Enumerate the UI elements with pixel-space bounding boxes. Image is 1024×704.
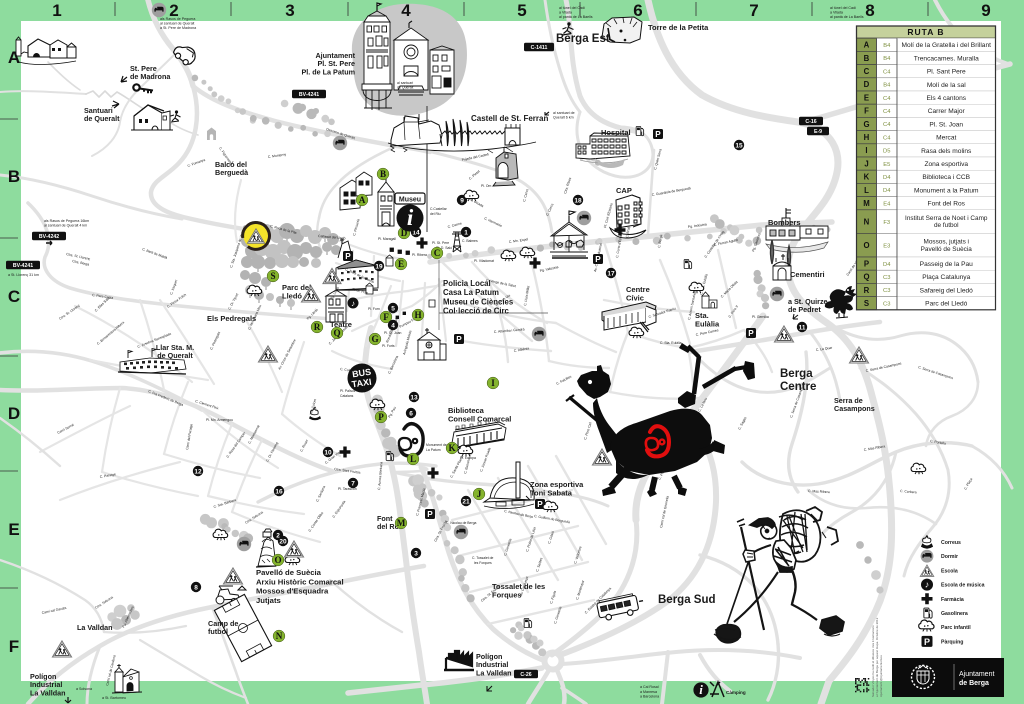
svg-text:I: I xyxy=(865,146,867,155)
svg-text:1: 1 xyxy=(464,230,468,237)
svg-text:a Barcelona: a Barcelona xyxy=(640,695,659,699)
svg-text:Torre de la Petita: Torre de la Petita xyxy=(648,23,709,32)
svg-text:a St. Bartomeu: a St. Bartomeu xyxy=(102,696,126,700)
svg-text:P: P xyxy=(924,637,930,647)
svg-text:a Vilada: a Vilada xyxy=(830,10,843,14)
svg-text:A: A xyxy=(8,48,20,67)
svg-text:C3: C3 xyxy=(883,288,890,294)
svg-text:Ajuntament @Ajuntamentomou: Ajuntament @Ajuntamentomou xyxy=(879,655,883,697)
svg-text:BV-4241: BV-4241 xyxy=(299,92,319,98)
svg-text:Farmàcia: Farmàcia xyxy=(941,597,964,603)
svg-text:BV-4242: BV-4242 xyxy=(39,234,59,240)
svg-text:als Rasos de Peguera 16km: als Rasos de Peguera 16km xyxy=(44,219,89,223)
svg-text:Berga: Berga xyxy=(780,368,813,380)
svg-text:Cementiri: Cementiri xyxy=(790,270,825,279)
svg-text:Berga Sud: Berga Sud xyxy=(658,594,716,606)
svg-text:a Solsona: a Solsona xyxy=(76,687,92,691)
svg-text:de Queralt: de Queralt xyxy=(84,114,120,123)
svg-text:P: P xyxy=(427,510,433,519)
svg-text:B4: B4 xyxy=(883,83,891,89)
svg-text:P: P xyxy=(595,255,601,264)
svg-text:Ajuntament: Ajuntament xyxy=(959,671,994,678)
svg-text:Jutjats: Jutjats xyxy=(256,596,281,605)
svg-text:futbol: futbol xyxy=(208,627,228,636)
svg-text:7: 7 xyxy=(351,481,355,488)
svg-text:Pl. Viladomat: Pl. Viladomat xyxy=(474,259,494,263)
svg-text:al santuari de: al santuari de xyxy=(553,111,575,115)
svg-text:R: R xyxy=(864,286,870,295)
svg-text:17: 17 xyxy=(607,271,615,278)
svg-text:Carrer Major: Carrer Major xyxy=(928,108,966,115)
svg-text:20: 20 xyxy=(279,539,287,546)
svg-text:Escola de música: Escola de música xyxy=(941,583,985,589)
svg-text:Dormir: Dormir xyxy=(941,554,958,560)
svg-text:H: H xyxy=(414,310,421,320)
svg-text:La Valldan: La Valldan xyxy=(77,623,113,632)
svg-text:Càmping: Càmping xyxy=(726,690,746,695)
svg-text:al santuari de Queralt 4 km: al santuari de Queralt 4 km xyxy=(44,223,87,227)
svg-text:B: B xyxy=(864,54,870,63)
svg-text:C: C xyxy=(864,67,870,76)
svg-text:♪: ♪ xyxy=(925,580,930,590)
svg-text:Els Pedregals: Els Pedregals xyxy=(207,314,256,323)
svg-text:Queralt 6 km: Queralt 6 km xyxy=(553,116,574,120)
svg-text:C: C xyxy=(434,248,441,258)
svg-text:F: F xyxy=(864,107,869,116)
svg-text:a Manresa: a Manresa xyxy=(640,690,657,694)
svg-text:A: A xyxy=(864,41,870,50)
svg-text:D4: D4 xyxy=(883,188,891,194)
svg-text:al pantà de La Baells: al pantà de La Baells xyxy=(559,15,593,19)
svg-text:C. Nicolau de Berga: C. Nicolau de Berga xyxy=(446,521,476,525)
svg-text:O: O xyxy=(274,555,281,565)
svg-text:B: B xyxy=(380,169,386,179)
svg-text:C4: C4 xyxy=(883,109,891,115)
svg-text:10: 10 xyxy=(324,450,332,457)
svg-text:D5: D5 xyxy=(883,149,890,155)
svg-text:G: G xyxy=(863,120,869,129)
svg-text:C4: C4 xyxy=(883,135,891,141)
svg-text:13: 13 xyxy=(410,395,418,402)
svg-text:Lledó: Lledó xyxy=(282,292,302,301)
svg-text:B: B xyxy=(8,167,20,186)
svg-text:a St. Pere de Madrona: a St. Pere de Madrona xyxy=(160,26,196,30)
svg-text:Parc infantil: Parc infantil xyxy=(941,625,971,631)
svg-text:9: 9 xyxy=(460,198,464,205)
svg-text:11: 11 xyxy=(799,325,806,332)
svg-text:Castell de St. Ferran: Castell de St. Ferran xyxy=(471,114,548,123)
svg-text:al pantà de La Baells: al pantà de La Baells xyxy=(830,15,864,19)
svg-text:Parc del Lledó: Parc del Lledó xyxy=(925,301,967,308)
svg-text:B4: B4 xyxy=(883,43,891,49)
svg-text:Berga Est: Berga Est xyxy=(556,33,610,45)
svg-text:Molí de la Gratella i del Bril: Molí de la Gratella i del Brillant xyxy=(902,42,992,49)
svg-text:C4: C4 xyxy=(883,69,891,75)
svg-text:N: N xyxy=(864,217,870,226)
svg-text:Casa La Patum: Casa La Patum xyxy=(443,288,499,297)
svg-text:Pl. St. Joan: Pl. St. Joan xyxy=(929,121,963,128)
svg-text:Gasolinera: Gasolinera xyxy=(941,611,968,617)
svg-text:D: D xyxy=(864,80,870,89)
svg-text:C4: C4 xyxy=(883,122,891,128)
svg-text:La Valldan: La Valldan xyxy=(30,688,66,697)
svg-text:E3: E3 xyxy=(883,243,890,249)
svg-text:i: i xyxy=(699,682,703,697)
svg-text:J: J xyxy=(477,489,482,499)
svg-text:de futbol: de futbol xyxy=(934,222,959,229)
svg-text:Pl. Forts: Pl. Forts xyxy=(382,344,395,348)
svg-text:16: 16 xyxy=(275,489,283,496)
svg-text:E4: E4 xyxy=(883,201,891,207)
svg-text:La Patum: La Patum xyxy=(426,448,441,452)
svg-text:Pl. Europa: Pl. Europa xyxy=(460,456,476,460)
svg-text:de Berga: de Berga xyxy=(959,680,989,687)
svg-text:Pàrquing: Pàrquing xyxy=(941,639,963,645)
svg-text:Plaça Catalunya: Plaça Catalunya xyxy=(922,274,970,281)
svg-text:Pl. de La Patum: Pl. de La Patum xyxy=(301,67,355,76)
svg-text:E: E xyxy=(864,93,869,102)
svg-text:♪: ♪ xyxy=(351,299,355,308)
svg-text:5: 5 xyxy=(391,306,395,313)
svg-text:Pl. Maragall: Pl. Maragall xyxy=(378,237,396,241)
svg-text:Font del Ros: Font del Ros xyxy=(928,201,966,208)
svg-text:Pl. Països: Pl. Països xyxy=(340,389,356,393)
svg-text:Monument a la Patum: Monument a la Patum xyxy=(914,187,979,194)
svg-text:de Madrona: de Madrona xyxy=(130,72,171,81)
svg-text:Pl. Sant Pere: Pl. Sant Pere xyxy=(927,69,966,76)
svg-text:al túnel del Cadí: al túnel del Cadí xyxy=(559,6,585,10)
svg-text:R: R xyxy=(314,322,321,332)
svg-text:6: 6 xyxy=(409,411,413,418)
svg-text:1: 1 xyxy=(52,1,61,20)
svg-text:de Pedret: de Pedret xyxy=(788,305,821,314)
svg-text:7: 7 xyxy=(749,1,758,20)
svg-text:Berguedà: Berguedà xyxy=(215,168,249,177)
svg-text:Catalans: Catalans xyxy=(340,394,354,398)
svg-text:E: E xyxy=(8,520,19,539)
svg-text:Pl. Ribera: Pl. Ribera xyxy=(412,253,427,257)
svg-text:Toni Sabata: Toni Sabata xyxy=(530,489,573,498)
svg-text:19: 19 xyxy=(375,264,383,271)
svg-text:Arxiu Històric Comarcal: Arxiu Històric Comarcal xyxy=(256,577,344,586)
svg-text:M: M xyxy=(397,518,406,528)
svg-text:P: P xyxy=(655,130,661,139)
svg-text:Trencacames. Muralla: Trencacames. Muralla xyxy=(914,55,979,62)
svg-text:Pl. St. Pere: Pl. St. Pere xyxy=(432,241,449,245)
svg-text:3: 3 xyxy=(285,1,294,20)
svg-text:P: P xyxy=(537,500,543,509)
svg-text:M: M xyxy=(863,199,870,208)
svg-text:9: 9 xyxy=(981,1,990,20)
svg-text:al santuari de Queralt: al santuari de Queralt xyxy=(160,21,194,25)
svg-text:D4: D4 xyxy=(883,262,891,268)
svg-text:12: 12 xyxy=(194,469,202,476)
svg-text:a Vilada: a Vilada xyxy=(559,10,572,14)
svg-text:L: L xyxy=(410,454,416,464)
svg-text:La Valldan: La Valldan xyxy=(476,668,512,677)
svg-text:A: A xyxy=(359,195,366,205)
svg-text:P: P xyxy=(748,329,754,338)
svg-text:Rasa dels molins: Rasa dels molins xyxy=(921,148,972,155)
svg-text:al santuari: al santuari xyxy=(397,81,413,85)
svg-text:C. Balmes: C. Balmes xyxy=(462,239,478,243)
svg-text:C: C xyxy=(8,287,20,306)
svg-text:B4: B4 xyxy=(883,56,891,62)
svg-text:F3: F3 xyxy=(883,220,890,226)
svg-text:C-1411: C-1411 xyxy=(531,45,548,51)
svg-text:N: N xyxy=(276,631,283,641)
svg-text:Institut Serra de Noet i Camp: Institut Serra de Noet i Camp xyxy=(905,215,988,222)
svg-text:Bombers: Bombers xyxy=(768,218,801,227)
svg-text:Q: Q xyxy=(333,328,340,338)
svg-text:a Cal Rosal: a Cal Rosal xyxy=(640,685,659,689)
svg-text:C3: C3 xyxy=(883,301,890,307)
svg-text:Q: Q xyxy=(863,273,869,282)
svg-text:Safareig del Lledó: Safareig del Lledó xyxy=(920,287,973,294)
svg-text:21: 21 xyxy=(462,499,470,506)
svg-text:Col·lecció de Circ: Col·lecció de Circ xyxy=(443,307,510,316)
svg-text:Els 4 cantons: Els 4 cantons xyxy=(926,95,966,102)
svg-text:Pavelló de Suècia: Pavelló de Suècia xyxy=(921,246,973,253)
svg-text:Pl. Om: Pl. Om xyxy=(481,184,492,188)
svg-text:E: E xyxy=(398,259,404,269)
svg-text:Consell Comarcal: Consell Comarcal xyxy=(448,415,511,424)
svg-text:Zona esportiva: Zona esportiva xyxy=(924,161,968,168)
svg-text:Casampons: Casampons xyxy=(834,404,875,413)
svg-text:Policia Local: Policia Local xyxy=(443,279,491,288)
svg-text:Pl. Gernika: Pl. Gernika xyxy=(752,315,769,319)
svg-text:5: 5 xyxy=(517,1,526,20)
svg-text:C-16: C-16 xyxy=(805,119,816,125)
svg-text:C4: C4 xyxy=(883,96,891,102)
svg-text:de Queralt: de Queralt xyxy=(397,85,413,89)
svg-text:Pl. Forn: Pl. Forn xyxy=(368,307,380,311)
svg-text:F: F xyxy=(9,637,19,656)
svg-text:RUTA B: RUTA B xyxy=(907,27,944,37)
svg-text:H: H xyxy=(864,133,870,142)
svg-text:L: L xyxy=(864,186,869,195)
svg-text:3: 3 xyxy=(414,551,418,558)
svg-text:6: 6 xyxy=(633,1,642,20)
svg-text:C. Tossalet de: C. Tossalet de xyxy=(472,556,494,560)
svg-text:4: 4 xyxy=(391,323,395,330)
svg-text:S: S xyxy=(270,271,275,281)
svg-text:C.Castellar: C.Castellar xyxy=(430,207,448,211)
svg-text:C3: C3 xyxy=(883,275,890,281)
svg-text:Mossos d'Esquadra: Mossos d'Esquadra xyxy=(256,587,329,596)
svg-text:J: J xyxy=(864,159,868,168)
svg-text:Eulàlia: Eulàlia xyxy=(695,320,720,329)
svg-text:G: G xyxy=(371,334,378,344)
svg-text:de Queralt: de Queralt xyxy=(157,351,193,360)
svg-text:Monument de: Monument de xyxy=(426,443,447,447)
svg-text:K: K xyxy=(864,173,870,182)
svg-text:CAP: CAP xyxy=(616,186,632,195)
svg-text:al túnel del Cadí: al túnel del Cadí xyxy=(830,6,856,10)
svg-text:2: 2 xyxy=(169,1,178,20)
svg-text:Cívic: Cívic xyxy=(626,294,644,303)
svg-text:Pl. Mn. Armengou: Pl. Mn. Armengou xyxy=(206,418,233,422)
svg-text:Passeig de la Pau: Passeig de la Pau xyxy=(920,261,973,268)
svg-text:Escola: Escola xyxy=(941,568,958,574)
svg-text:K: K xyxy=(448,443,456,453)
svg-text:C-26: C-26 xyxy=(520,672,531,678)
svg-text:F: F xyxy=(383,312,389,322)
svg-text:D4: D4 xyxy=(883,175,891,181)
svg-text:S: S xyxy=(864,299,869,308)
svg-text:Pavelló de Suècia: Pavelló de Suècia xyxy=(256,568,322,577)
svg-text:Pl. St. Joan: Pl. St. Joan xyxy=(384,331,401,335)
svg-text:les Forques: les Forques xyxy=(474,561,492,565)
svg-text:D: D xyxy=(8,404,20,423)
svg-text:4: 4 xyxy=(401,1,411,20)
svg-text:E5: E5 xyxy=(883,162,890,168)
svg-text:O: O xyxy=(863,241,869,250)
svg-text:Mercat: Mercat xyxy=(936,135,956,142)
svg-text:P: P xyxy=(345,252,351,261)
svg-text:Mossos, jutjats i: Mossos, jutjats i xyxy=(924,239,969,246)
svg-text:BV-4241: BV-4241 xyxy=(13,263,33,269)
svg-text:E-9: E-9 xyxy=(814,129,822,135)
svg-text:Correus: Correus xyxy=(941,540,961,546)
svg-text:P: P xyxy=(378,412,384,422)
svg-text:8: 8 xyxy=(865,1,874,20)
svg-text:Molí de la sal: Molí de la sal xyxy=(927,82,966,89)
svg-text:8: 8 xyxy=(194,585,198,592)
svg-text:del Riu: del Riu xyxy=(430,212,441,216)
svg-text:a St. Llorenç 31 km: a St. Llorenç 31 km xyxy=(8,273,39,277)
svg-text:18: 18 xyxy=(574,198,582,205)
svg-text:P: P xyxy=(864,259,869,268)
svg-text:15: 15 xyxy=(735,143,743,150)
svg-text:Museu: Museu xyxy=(399,197,421,204)
svg-text:Biblioteca i CCB: Biblioteca i CCB xyxy=(922,174,970,181)
svg-text:Hospital: Hospital xyxy=(601,128,631,137)
svg-text:C. Sta. Eulàlia: C. Sta. Eulàlia xyxy=(660,341,682,345)
svg-text:P: P xyxy=(456,335,462,344)
svg-text:I: I xyxy=(491,378,495,388)
svg-text:i: i xyxy=(407,205,414,230)
svg-text:Forques: Forques xyxy=(492,591,522,600)
